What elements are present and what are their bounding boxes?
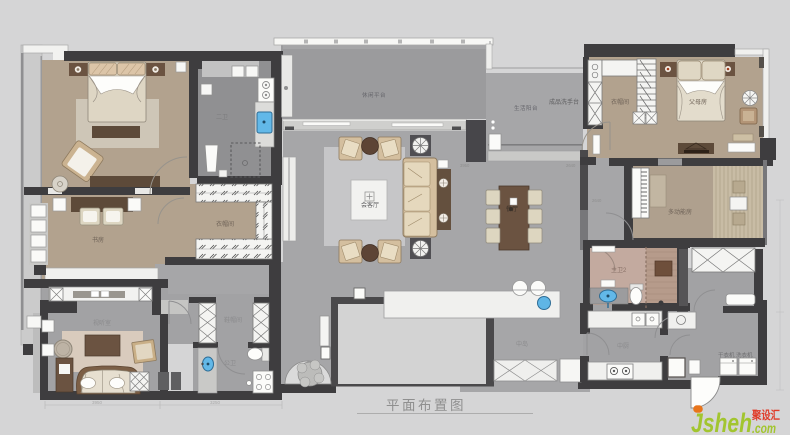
svg-text:鞋帽间: 鞋帽间 <box>224 316 242 324</box>
svg-text:3950: 3950 <box>460 163 470 168</box>
svg-text:2640: 2640 <box>566 163 576 168</box>
svg-text:餐厅: 餐厅 <box>506 205 518 213</box>
svg-text:2640: 2640 <box>592 198 602 203</box>
svg-text:中岛: 中岛 <box>516 340 528 348</box>
svg-text:多动能房: 多动能房 <box>668 208 692 216</box>
svg-text:中厨: 中厨 <box>617 342 629 350</box>
svg-text:衣帽间: 衣帽间 <box>216 220 234 228</box>
svg-text:平面布置图: 平面布置图 <box>386 398 466 413</box>
svg-text:衣帽间: 衣帽间 <box>611 98 629 106</box>
svg-text:休闲平台: 休闲平台 <box>362 91 386 99</box>
svg-text:3950: 3950 <box>92 400 103 405</box>
svg-text:视听室: 视听室 <box>93 319 111 327</box>
svg-text:会客厅: 会客厅 <box>361 201 379 209</box>
svg-text:二卫: 二卫 <box>216 114 228 121</box>
svg-text:3250: 3250 <box>210 400 221 405</box>
svg-text:成品洗手台: 成品洗手台 <box>549 98 579 106</box>
svg-text:.com: .com <box>752 420 776 435</box>
svg-text:生活阳台: 生活阳台 <box>514 104 538 112</box>
svg-text:主卫2: 主卫2 <box>611 266 627 274</box>
svg-text:聚设汇: 聚设汇 <box>751 408 780 422</box>
svg-text:公卫: 公卫 <box>224 360 236 367</box>
svg-text:书房: 书房 <box>92 236 104 244</box>
svg-text:干衣机 洗衣机: 干衣机 洗衣机 <box>718 351 753 359</box>
svg-text:父母房: 父母房 <box>689 98 707 106</box>
